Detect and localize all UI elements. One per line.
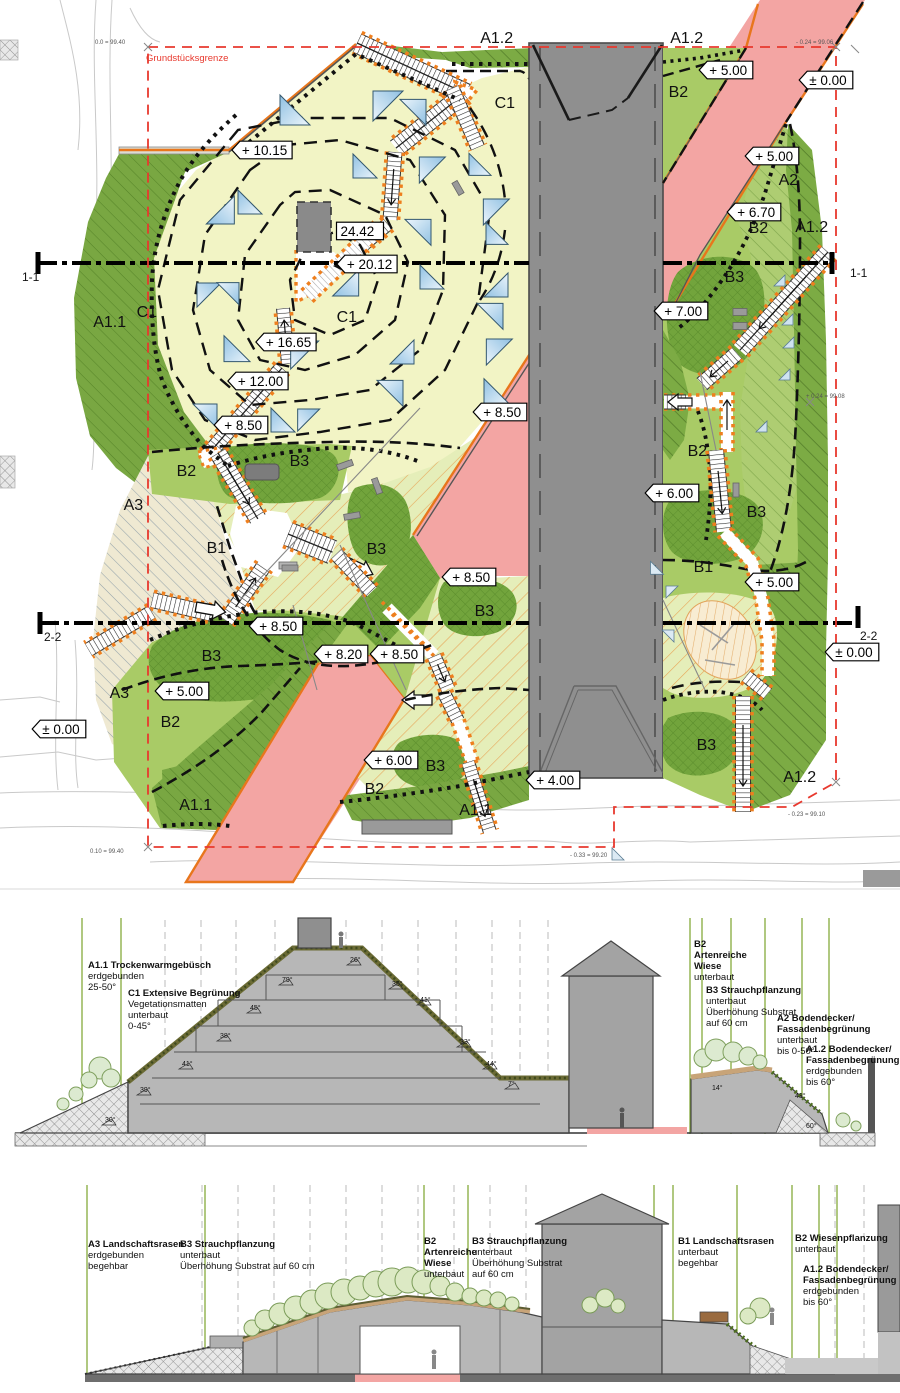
svg-text:B2: B2: [161, 714, 181, 731]
svg-text:25-50°: 25-50°: [88, 982, 116, 993]
svg-text:+ 0.24 = 99.08: + 0.24 = 99.08: [806, 394, 845, 400]
svg-text:B3: B3: [475, 603, 495, 620]
svg-text:- 0.23 = 99.10: - 0.23 = 99.10: [788, 812, 826, 818]
svg-text:A1.1: A1.1: [179, 797, 212, 814]
svg-text:B2: B2: [688, 443, 708, 460]
svg-text:C1 Extensive Begrünung: C1 Extensive Begrünung: [128, 988, 241, 999]
svg-text:A3: A3: [110, 685, 130, 702]
svg-text:unterbaut: unterbaut: [180, 1250, 221, 1261]
svg-text:Vegetationsmatten: Vegetationsmatten: [128, 999, 207, 1010]
svg-text:B2: B2: [365, 781, 385, 798]
svg-text:auf 60 cm: auf 60 cm: [472, 1269, 514, 1280]
svg-text:B1: B1: [207, 540, 227, 557]
svg-text:+ 20.12: + 20.12: [347, 257, 392, 272]
svg-text:B1: B1: [694, 559, 714, 576]
svg-text:begehbar: begehbar: [678, 1258, 718, 1269]
svg-text:2-2: 2-2: [44, 630, 62, 644]
svg-text:B2: B2: [424, 1236, 436, 1247]
svg-text:erdgebunden: erdgebunden: [88, 971, 144, 982]
svg-text:C1: C1: [337, 309, 358, 326]
svg-text:+ 7.00: + 7.00: [664, 304, 702, 319]
svg-text:+ 6.00: + 6.00: [374, 753, 412, 768]
svg-text:Fassadenbegrünung: Fassadenbegrünung: [777, 1024, 871, 1035]
svg-text:bis 60°: bis 60°: [803, 1297, 832, 1308]
svg-text:A1.2: A1.2: [783, 769, 816, 786]
svg-text:B2 Wiesenpflanzung: B2 Wiesenpflanzung: [795, 1233, 888, 1244]
svg-text:A1.1: A1.1: [459, 802, 492, 819]
svg-text:B2: B2: [749, 220, 769, 237]
svg-text:43°: 43°: [795, 1092, 806, 1100]
svg-text:erdgebunden: erdgebunden: [803, 1286, 859, 1297]
svg-text:± 0.00: ± 0.00: [835, 645, 872, 660]
svg-text:A3 Landschaftsrasen: A3 Landschaftsrasen: [88, 1239, 184, 1250]
svg-text:+ 8.50: + 8.50: [224, 418, 262, 433]
svg-text:B3: B3: [426, 758, 446, 775]
svg-text:bis 60°: bis 60°: [806, 1077, 835, 1088]
svg-text:0.10 = 99.40: 0.10 = 99.40: [90, 849, 124, 855]
svg-text:C1: C1: [495, 95, 516, 112]
svg-text:A1.2: A1.2: [480, 30, 513, 47]
svg-text:Wiese: Wiese: [694, 961, 721, 972]
svg-text:± 0.00: ± 0.00: [809, 73, 846, 88]
svg-text:B3 Strauchpflanzung: B3 Strauchpflanzung: [180, 1239, 275, 1250]
svg-text:+ 5.00: + 5.00: [709, 63, 747, 78]
svg-text:A1.2 Bodendecker/: A1.2 Bodendecker/: [806, 1044, 892, 1055]
svg-text:A1.2: A1.2: [670, 30, 703, 47]
svg-text:Grundstücksgrenze: Grundstücksgrenze: [146, 53, 228, 64]
svg-text:- 0.24 = 99.06: - 0.24 = 99.06: [796, 40, 834, 46]
svg-text:B3: B3: [202, 648, 222, 665]
svg-text:± 0.00: ± 0.00: [42, 722, 79, 737]
svg-text:begehbar: begehbar: [88, 1261, 128, 1272]
svg-text:- 0.33 = 99.20: - 0.33 = 99.20: [570, 853, 608, 859]
svg-text:+ 8.50: + 8.50: [380, 647, 418, 662]
svg-text:Überhöhung Substrat: Überhöhung Substrat: [472, 1258, 563, 1269]
svg-text:0-45°: 0-45°: [128, 1021, 151, 1032]
svg-text:+ 12.00: + 12.00: [238, 374, 283, 389]
svg-text:Wiese: Wiese: [424, 1258, 451, 1269]
svg-text:unterbaut: unterbaut: [706, 996, 747, 1007]
svg-text:+ 5.00: + 5.00: [755, 575, 793, 590]
svg-text:Fassadenbegrünung: Fassadenbegrünung: [803, 1275, 897, 1286]
svg-text:B3: B3: [725, 269, 745, 286]
svg-text:14°: 14°: [712, 1084, 723, 1092]
svg-text:B3 Strauchpflanzung: B3 Strauchpflanzung: [706, 985, 801, 996]
svg-text:auf 60 cm: auf 60 cm: [706, 1018, 748, 1029]
svg-text:A3: A3: [124, 497, 144, 514]
svg-text:Artenreiche: Artenreiche: [424, 1247, 477, 1258]
svg-text:+ 8.20: + 8.20: [324, 647, 362, 662]
svg-text:1-1: 1-1: [22, 270, 40, 284]
svg-text:+ 8.50: + 8.50: [259, 619, 297, 634]
svg-text:B3: B3: [367, 541, 387, 558]
svg-text:+ 8.50: + 8.50: [483, 405, 521, 420]
svg-text:erdgebunden: erdgebunden: [806, 1066, 862, 1077]
svg-text:A2: A2: [779, 172, 799, 189]
svg-text:+ 10.15: + 10.15: [242, 143, 287, 158]
svg-text:+ 5.00: + 5.00: [165, 684, 203, 699]
svg-text:unterbaut: unterbaut: [472, 1247, 513, 1258]
svg-text:B3 Strauchpflanzung: B3 Strauchpflanzung: [472, 1236, 567, 1247]
svg-text:B3: B3: [697, 737, 717, 754]
svg-text:60°: 60°: [806, 1122, 817, 1130]
svg-text:B3: B3: [747, 504, 767, 521]
svg-text:B2: B2: [177, 463, 197, 480]
svg-text:erdgebunden: erdgebunden: [88, 1250, 144, 1261]
svg-text:0.0 = 99.40: 0.0 = 99.40: [95, 40, 126, 46]
svg-text:Fassadenbegrünung: Fassadenbegrünung: [806, 1055, 900, 1066]
svg-text:+ 5.00: + 5.00: [755, 149, 793, 164]
svg-text:A1.2: A1.2: [795, 219, 828, 236]
svg-text:B3: B3: [290, 453, 310, 470]
svg-text:unterbaut: unterbaut: [128, 1010, 169, 1021]
svg-text:2-2: 2-2: [860, 629, 878, 643]
svg-text:C1: C1: [137, 304, 158, 321]
svg-text:B2: B2: [669, 84, 689, 101]
svg-text:A1.1: A1.1: [93, 314, 126, 331]
svg-text:1-1: 1-1: [850, 266, 868, 280]
svg-text:unterbaut: unterbaut: [424, 1269, 465, 1280]
svg-text:A1.2 Bodendecker/: A1.2 Bodendecker/: [803, 1264, 889, 1275]
svg-text:+ 8.50: + 8.50: [452, 570, 490, 585]
svg-text:+ 6.00: + 6.00: [655, 486, 693, 501]
svg-text:Überhöhung Substrat auf 60 cm: Überhöhung Substrat auf 60 cm: [180, 1261, 315, 1272]
svg-text:unterbaut: unterbaut: [795, 1244, 836, 1255]
svg-text:A2 Bodendecker/: A2 Bodendecker/: [777, 1013, 855, 1024]
svg-text:+ 16.65: + 16.65: [266, 335, 311, 350]
svg-text:+ 4.00: + 4.00: [536, 773, 574, 788]
svg-text:A1.1 Trockenwarmgebüsch: A1.1 Trockenwarmgebüsch: [88, 960, 211, 971]
svg-text:Artenreiche: Artenreiche: [694, 950, 747, 961]
svg-text:unterbaut: unterbaut: [694, 972, 735, 983]
svg-text:unterbaut: unterbaut: [678, 1247, 719, 1258]
svg-text:B2: B2: [694, 939, 706, 950]
svg-text:B1 Landschaftsrasen: B1 Landschaftsrasen: [678, 1236, 774, 1247]
svg-text:24.42: 24.42: [341, 224, 375, 239]
svg-text:+ 6.70: + 6.70: [737, 205, 775, 220]
